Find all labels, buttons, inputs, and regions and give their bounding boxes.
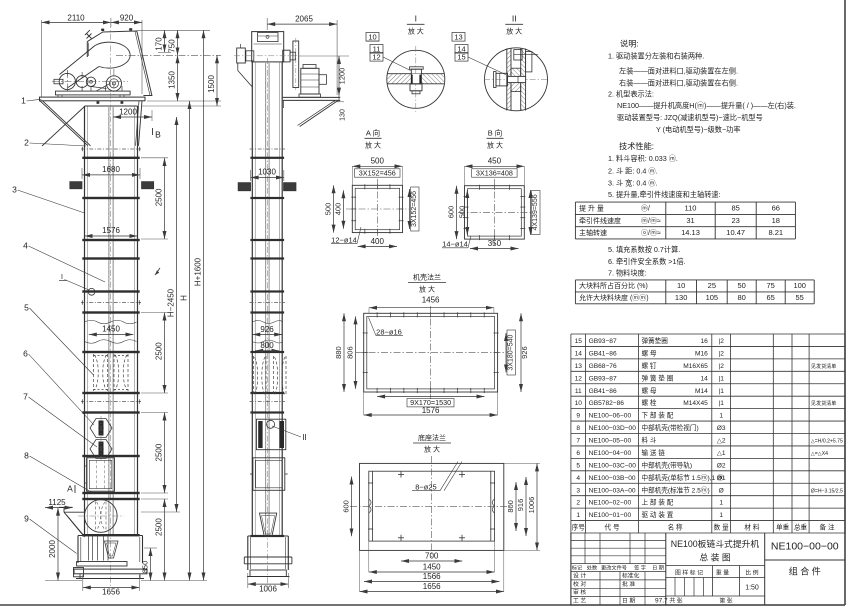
svg-text:放 大: 放 大 xyxy=(419,285,435,294)
svg-text:7: 7 xyxy=(576,438,580,445)
svg-text:800: 800 xyxy=(260,341,274,350)
svg-text:75: 75 xyxy=(767,281,775,290)
svg-text:600: 600 xyxy=(342,500,351,513)
svg-text:下 部 装 配: 下 部 装 配 xyxy=(642,411,674,420)
svg-text:单重: 单重 xyxy=(776,523,790,532)
svg-text:A 向: A 向 xyxy=(366,128,380,138)
svg-text:允许大块料块度 (ⓜⓜ): 允许大块料块度 (ⓜⓜ) xyxy=(579,293,649,302)
svg-text:920: 920 xyxy=(120,14,134,23)
svg-text:共 张: 共 张 xyxy=(669,597,682,605)
svg-text:A: A xyxy=(67,484,73,494)
svg-text:代 号: 代 号 xyxy=(605,523,620,532)
svg-text:3: 3 xyxy=(12,185,17,195)
svg-text:驱 动 装 置: 驱 动 装 置 xyxy=(642,510,674,519)
svg-text:右装——面对进料口,驱动装置在右侧.: 右装——面对进料口,驱动装置在右侧. xyxy=(619,79,738,88)
svg-text:放 大: 放 大 xyxy=(487,141,503,150)
svg-text:见发货清单: 见发货清单 xyxy=(811,363,836,370)
svg-text:1: 1 xyxy=(719,500,723,507)
svg-text:I: I xyxy=(61,274,63,281)
svg-text:输 送 链: 输 送 链 xyxy=(642,448,666,457)
svg-text:1006: 1006 xyxy=(527,497,536,514)
svg-text:105: 105 xyxy=(706,293,719,302)
svg-text:1350: 1350 xyxy=(168,71,177,89)
svg-text:组 合 件: 组 合 件 xyxy=(789,566,821,577)
svg-text:12−ø14: 12−ø14 xyxy=(331,236,357,245)
svg-text:Ø=H−3.15/2.5: Ø=H−3.15/2.5 xyxy=(811,488,843,494)
svg-text:中部机壳(标准节 2.5ⓜ): 中部机壳(标准节 2.5ⓜ) xyxy=(642,485,710,494)
svg-text:18: 18 xyxy=(772,216,780,225)
svg-text:16: 16 xyxy=(700,338,708,345)
svg-text:1200: 1200 xyxy=(119,108,137,117)
svg-text:日 期: 日 期 xyxy=(652,565,664,572)
svg-text:更改文件号: 更改文件号 xyxy=(601,564,627,572)
svg-text:12: 12 xyxy=(575,375,583,382)
svg-text:400: 400 xyxy=(371,237,385,246)
svg-text:I: I xyxy=(415,14,417,24)
svg-text:NE100−06−00: NE100−06−00 xyxy=(589,413,632,420)
svg-text:大块料所占百分比 (%): 大块料所占百分比 (%) xyxy=(579,281,648,290)
svg-text:ⓜ/ⓜ≈: ⓜ/ⓜ≈ xyxy=(641,217,661,225)
svg-text:15: 15 xyxy=(457,52,465,61)
svg-text:28−ø16: 28−ø16 xyxy=(376,328,402,337)
svg-text:1:50: 1:50 xyxy=(745,585,759,592)
svg-text:1125: 1125 xyxy=(48,498,66,507)
svg-text:2065: 2065 xyxy=(295,15,313,24)
svg-text:放 大: 放 大 xyxy=(365,141,381,150)
svg-text:100: 100 xyxy=(793,281,806,290)
svg-text:中部机壳(带检视门): 中部机壳(带检视门) xyxy=(642,423,699,432)
svg-text:1576: 1576 xyxy=(422,406,440,415)
svg-text:|1: |1 xyxy=(719,400,725,407)
svg-text:1450: 1450 xyxy=(102,325,120,334)
svg-text:1: 1 xyxy=(719,413,723,420)
svg-text:2500: 2500 xyxy=(155,518,164,536)
svg-text:80: 80 xyxy=(738,293,746,302)
svg-text:II: II xyxy=(302,433,306,442)
svg-text:△1: △1 xyxy=(717,450,726,457)
svg-text:M16X65: M16X65 xyxy=(683,363,708,370)
svg-text:2. 斗 距: 0.4 ⓜ.: 2. 斗 距: 0.4 ⓜ. xyxy=(608,167,658,176)
svg-text:GB5782−86: GB5782−86 xyxy=(589,400,625,407)
svg-text:11: 11 xyxy=(575,388,582,395)
svg-text:1456: 1456 xyxy=(422,296,440,305)
svg-text:2500: 2500 xyxy=(155,443,164,461)
svg-text:材 料: 材 料 xyxy=(744,523,759,532)
svg-text:M14: M14 xyxy=(695,388,708,395)
svg-text:牵引件线速度: 牵引件线速度 xyxy=(579,216,621,225)
svg-text:6: 6 xyxy=(576,450,580,457)
svg-text:|1: |1 xyxy=(719,388,725,395)
svg-text:重 量: 重 量 xyxy=(716,569,729,577)
svg-text:2. 机型表示法:: 2. 机型表示法: xyxy=(608,90,654,99)
svg-text:6: 6 xyxy=(23,349,28,359)
svg-text:NE100−05−00: NE100−05−00 xyxy=(589,438,632,445)
svg-text:170: 170 xyxy=(155,37,164,51)
svg-text:数 量: 数 量 xyxy=(714,523,729,532)
svg-text:中部机壳(带导轨): 中部机壳(带导轨) xyxy=(642,460,693,469)
svg-text:第 张: 第 张 xyxy=(719,597,732,605)
svg-text:1576: 1576 xyxy=(102,226,120,235)
svg-text:NE100−03D−00: NE100−03D−00 xyxy=(589,425,637,432)
svg-text:M14X45: M14X45 xyxy=(683,400,708,407)
svg-text:ⓜ/: ⓜ/ xyxy=(641,205,650,213)
svg-text:签 字: 签 字 xyxy=(634,564,646,572)
svg-text:GB93−87: GB93−87 xyxy=(589,375,617,382)
svg-text:总重: 总重 xyxy=(794,523,808,532)
svg-text:△=H/0.2+5.75: △=H/0.2+5.75 xyxy=(811,439,843,445)
svg-text:备 注: 备 注 xyxy=(820,523,835,532)
svg-text:总 装 图: 总 装 图 xyxy=(699,552,730,563)
svg-text:600: 600 xyxy=(447,206,456,219)
svg-text:23: 23 xyxy=(732,216,740,225)
svg-text:NE100−00−00: NE100−00−00 xyxy=(771,541,839,553)
svg-text:850: 850 xyxy=(141,561,150,574)
svg-text:NE100−03C−00: NE100−03C−00 xyxy=(589,462,637,469)
svg-text:螺 母: 螺 母 xyxy=(642,386,657,395)
svg-text:Y (电动机型号)−级数−功率: Y (电动机型号)−级数−功率 xyxy=(656,125,741,134)
svg-text:85: 85 xyxy=(732,204,740,213)
svg-text:700: 700 xyxy=(425,552,439,561)
svg-text:97.7: 97.7 xyxy=(655,598,668,605)
svg-text:3X136=408: 3X136=408 xyxy=(476,168,513,177)
svg-text:13: 13 xyxy=(575,363,583,370)
svg-text:4: 4 xyxy=(23,241,28,251)
svg-text:H: H xyxy=(180,295,189,301)
svg-text:提 升 量: 提 升 量 xyxy=(579,204,604,213)
svg-text:GB41−86: GB41−86 xyxy=(589,350,617,357)
svg-text:5: 5 xyxy=(24,303,29,313)
svg-text:|2: |2 xyxy=(719,338,725,345)
svg-text:1656: 1656 xyxy=(102,588,120,597)
svg-text:7: 7 xyxy=(23,392,28,402)
svg-text:4: 4 xyxy=(576,475,580,482)
svg-text:1450: 1450 xyxy=(423,563,441,572)
svg-text:NE100−03A−00: NE100−03A−00 xyxy=(589,487,636,494)
svg-text:14−ø14: 14−ø14 xyxy=(442,240,468,249)
svg-text:14.13: 14.13 xyxy=(681,228,700,237)
svg-text:14: 14 xyxy=(575,350,583,357)
svg-text:130: 130 xyxy=(340,109,347,121)
svg-text:工 艺: 工 艺 xyxy=(573,597,586,605)
svg-text:500: 500 xyxy=(324,203,333,216)
svg-text:△2: △2 xyxy=(717,438,726,445)
svg-text:螺 钉: 螺 钉 xyxy=(642,361,657,370)
svg-text:1656: 1656 xyxy=(423,582,441,591)
svg-text:ⓞ/ⓜ≈: ⓞ/ⓜ≈ xyxy=(641,229,661,237)
svg-text:806: 806 xyxy=(346,346,355,359)
svg-text:处数: 处数 xyxy=(587,564,598,572)
svg-text:14: 14 xyxy=(700,375,708,382)
svg-text:技术性能:: 技术性能: xyxy=(619,141,654,151)
svg-text:放 大: 放 大 xyxy=(408,27,424,36)
svg-text:弹 簧 垫 圈: 弹 簧 垫 圈 xyxy=(642,373,674,382)
svg-text:Ø3: Ø3 xyxy=(717,425,726,432)
svg-text:31: 31 xyxy=(686,216,694,225)
svg-text:左装——面对进料口,驱动装置在左侧.: 左装——面对进料口,驱动装置在左侧. xyxy=(619,67,738,76)
svg-text:1680: 1680 xyxy=(102,165,120,174)
svg-text:1: 1 xyxy=(576,512,580,519)
svg-text:底座法兰: 底座法兰 xyxy=(418,433,446,442)
svg-text:750: 750 xyxy=(168,39,177,53)
svg-text:标准化: 标准化 xyxy=(622,572,640,580)
svg-text:10: 10 xyxy=(368,32,376,41)
svg-text:图 样 标 记: 图 样 标 记 xyxy=(675,569,703,577)
svg-text:1566: 1566 xyxy=(423,572,441,581)
svg-text:B: B xyxy=(155,130,161,140)
svg-text:放 大: 放 大 xyxy=(424,445,440,454)
svg-text:3: 3 xyxy=(576,487,580,494)
svg-text:2: 2 xyxy=(24,138,29,148)
svg-text:3X152=456: 3X152=456 xyxy=(359,168,396,177)
svg-text:NE100−04−00: NE100−04−00 xyxy=(589,450,632,457)
svg-text:放 大: 放 大 xyxy=(506,27,522,36)
svg-text:弹簧垫圈: 弹簧垫圈 xyxy=(642,336,669,345)
svg-text:序号: 序号 xyxy=(572,523,586,532)
svg-text:50: 50 xyxy=(738,281,746,290)
svg-text:中部机壳(单标节 1.5ⓜ),1 ⓜ: 中部机壳(单标节 1.5ⓜ),1 ⓜ xyxy=(642,473,724,482)
svg-text:螺 栓: 螺 栓 xyxy=(642,398,657,407)
svg-text:标记: 标记 xyxy=(572,564,582,572)
svg-text:螺 母: 螺 母 xyxy=(642,348,657,357)
svg-text:8: 8 xyxy=(24,451,29,461)
svg-text:880: 880 xyxy=(334,346,343,359)
svg-text:500: 500 xyxy=(371,157,385,166)
svg-text:25: 25 xyxy=(708,281,716,290)
svg-text:2: 2 xyxy=(576,500,580,507)
svg-text:1200: 1200 xyxy=(338,68,347,85)
svg-text:4X139=556: 4X139=556 xyxy=(532,194,539,230)
svg-text:2110: 2110 xyxy=(67,14,85,23)
svg-text:1006: 1006 xyxy=(259,585,277,594)
svg-text:8−ø25: 8−ø25 xyxy=(415,483,436,492)
svg-text:55: 55 xyxy=(796,293,804,302)
svg-text:NE100板链斗式提升机: NE100板链斗式提升机 xyxy=(671,538,760,549)
svg-text:5. 提升量,牵引件线速度和主轴转速:: 5. 提升量,牵引件线速度和主轴转速: xyxy=(608,190,721,199)
svg-text:校 对: 校 对 xyxy=(573,580,586,588)
svg-text:Ø1: Ø1 xyxy=(717,475,726,482)
svg-text:设 计: 设 计 xyxy=(573,572,586,580)
svg-text:NE100−02−00: NE100−02−00 xyxy=(589,500,632,507)
svg-text:1. 驱动装置分左装和右装两种.: 1. 驱动装置分左装和右装两种. xyxy=(608,52,704,61)
svg-text:NE100——提升机高度H(ⓜ)——提升量( /: NE100——提升机高度H(ⓜ)——提升量( / )——左(右)装. xyxy=(617,101,796,110)
svg-text:8: 8 xyxy=(576,425,580,432)
svg-text:|2: |2 xyxy=(719,350,725,357)
svg-text:10: 10 xyxy=(677,281,685,290)
svg-text:3X180=540: 3X180=540 xyxy=(507,334,514,370)
svg-text:400: 400 xyxy=(333,203,342,216)
svg-text:66: 66 xyxy=(772,204,780,213)
svg-text:8.21: 8.21 xyxy=(768,228,783,237)
svg-text:1: 1 xyxy=(21,96,26,106)
svg-text:1500: 1500 xyxy=(207,75,216,93)
svg-text:机壳法兰: 机壳法兰 xyxy=(413,273,441,282)
svg-text:10: 10 xyxy=(575,400,583,407)
svg-text:130: 130 xyxy=(675,293,688,302)
svg-text:926: 926 xyxy=(520,346,529,359)
svg-text:比 例: 比 例 xyxy=(745,569,758,577)
svg-text:12: 12 xyxy=(372,52,380,61)
svg-text:审 核: 审 核 xyxy=(573,588,586,596)
svg-text:3. 斗 宽: 0.4 ⓜ.: 3. 斗 宽: 0.4 ⓜ. xyxy=(608,179,658,188)
svg-text:1. 料斗容积: 0.033 ⓜ.: 1. 料斗容积: 0.033 ⓜ. xyxy=(608,154,678,163)
svg-text:上 部 装 配: 上 部 装 配 xyxy=(642,498,674,507)
svg-text:M16: M16 xyxy=(695,350,708,357)
svg-text:△=△X4: △=△X4 xyxy=(811,451,828,457)
svg-text:350: 350 xyxy=(488,239,502,248)
svg-text:H+1600: H+1600 xyxy=(194,257,203,286)
svg-text:|1: |1 xyxy=(719,375,725,382)
svg-text:H−2450: H−2450 xyxy=(167,288,176,317)
svg-text:6. 牵引件安全系数 >1倍.: 6. 牵引件安全系数 >1倍. xyxy=(608,257,686,266)
svg-text:2000: 2000 xyxy=(48,540,57,558)
svg-text:料 斗: 料 斗 xyxy=(642,436,657,445)
svg-text:9: 9 xyxy=(576,413,580,420)
svg-text:B 向: B 向 xyxy=(488,128,503,138)
svg-text:见发货清单: 见发货清单 xyxy=(811,400,836,407)
svg-text:1030: 1030 xyxy=(258,168,276,177)
svg-text:NE100−01−00: NE100−01−00 xyxy=(589,512,632,519)
svg-text:说明:: 说明: xyxy=(620,39,639,49)
svg-text:主轴转速: 主轴转速 xyxy=(579,228,607,237)
svg-text:驱动装置型号: JZQ(减速机型号)−速比−机型号: 驱动装置型号: JZQ(减速机型号)−速比−机型号 xyxy=(617,113,763,122)
svg-text:5: 5 xyxy=(576,462,580,469)
svg-text:1: 1 xyxy=(719,512,723,519)
svg-text:110: 110 xyxy=(685,204,697,213)
svg-text:3X152=456: 3X152=456 xyxy=(411,191,418,227)
svg-text:GB68−76: GB68−76 xyxy=(589,363,617,370)
svg-text:926: 926 xyxy=(260,325,274,334)
svg-text:9: 9 xyxy=(24,514,29,524)
svg-text:GB41−86: GB41−86 xyxy=(589,388,617,395)
svg-text:2500: 2500 xyxy=(155,188,164,206)
svg-text:日 期: 日 期 xyxy=(622,598,635,605)
svg-text:Ø: Ø xyxy=(719,487,724,494)
svg-text:450: 450 xyxy=(488,157,502,166)
svg-text:Ø2: Ø2 xyxy=(717,462,726,469)
svg-text:13: 13 xyxy=(454,32,462,41)
svg-text:15: 15 xyxy=(575,338,583,345)
svg-text:II: II xyxy=(512,14,517,24)
svg-text:批 准: 批 准 xyxy=(622,580,635,588)
svg-text:NE100−03B−00: NE100−03B−00 xyxy=(589,475,636,482)
svg-text:65: 65 xyxy=(767,293,775,302)
svg-text:名 称: 名 称 xyxy=(668,523,683,532)
svg-text:7. 物料块度:: 7. 物料块度: xyxy=(608,269,647,278)
svg-text:500: 500 xyxy=(458,206,467,219)
svg-text:10.47: 10.47 xyxy=(726,228,745,237)
svg-text:|2: |2 xyxy=(719,363,725,370)
svg-text:916: 916 xyxy=(516,499,525,512)
svg-text:800: 800 xyxy=(506,500,515,513)
svg-text:GB93−87: GB93−87 xyxy=(589,338,617,345)
svg-text:5. 填充系数按 0.7计算.: 5. 填充系数按 0.7计算. xyxy=(608,245,680,254)
svg-text:2500: 2500 xyxy=(155,342,164,360)
